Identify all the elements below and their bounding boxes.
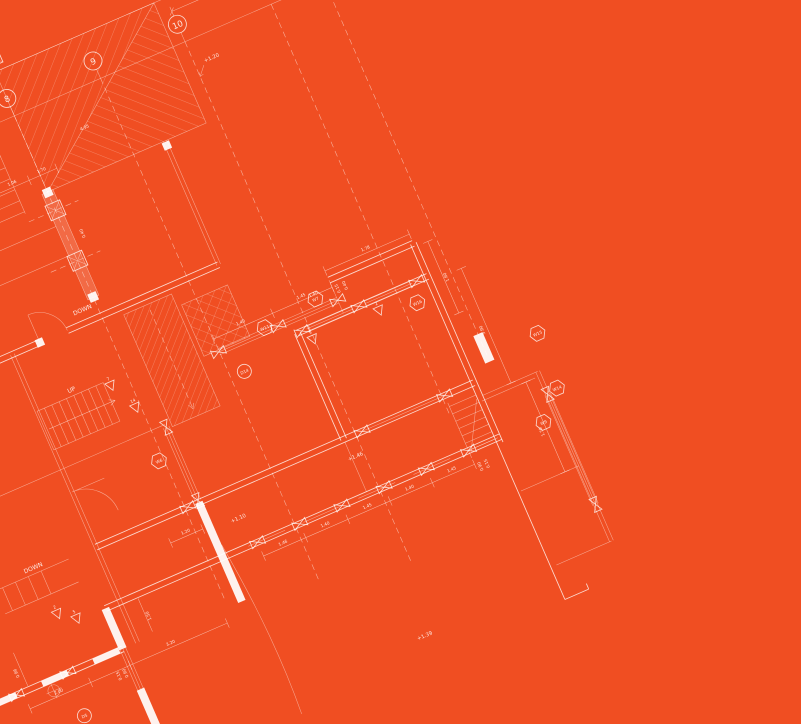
floor-plan-drawing: 4.82 4.95 8 9 10 +1.20	[0, 0, 801, 724]
blueprint-canvas: 4.82 4.95 8 9 10 +1.20	[0, 0, 801, 724]
